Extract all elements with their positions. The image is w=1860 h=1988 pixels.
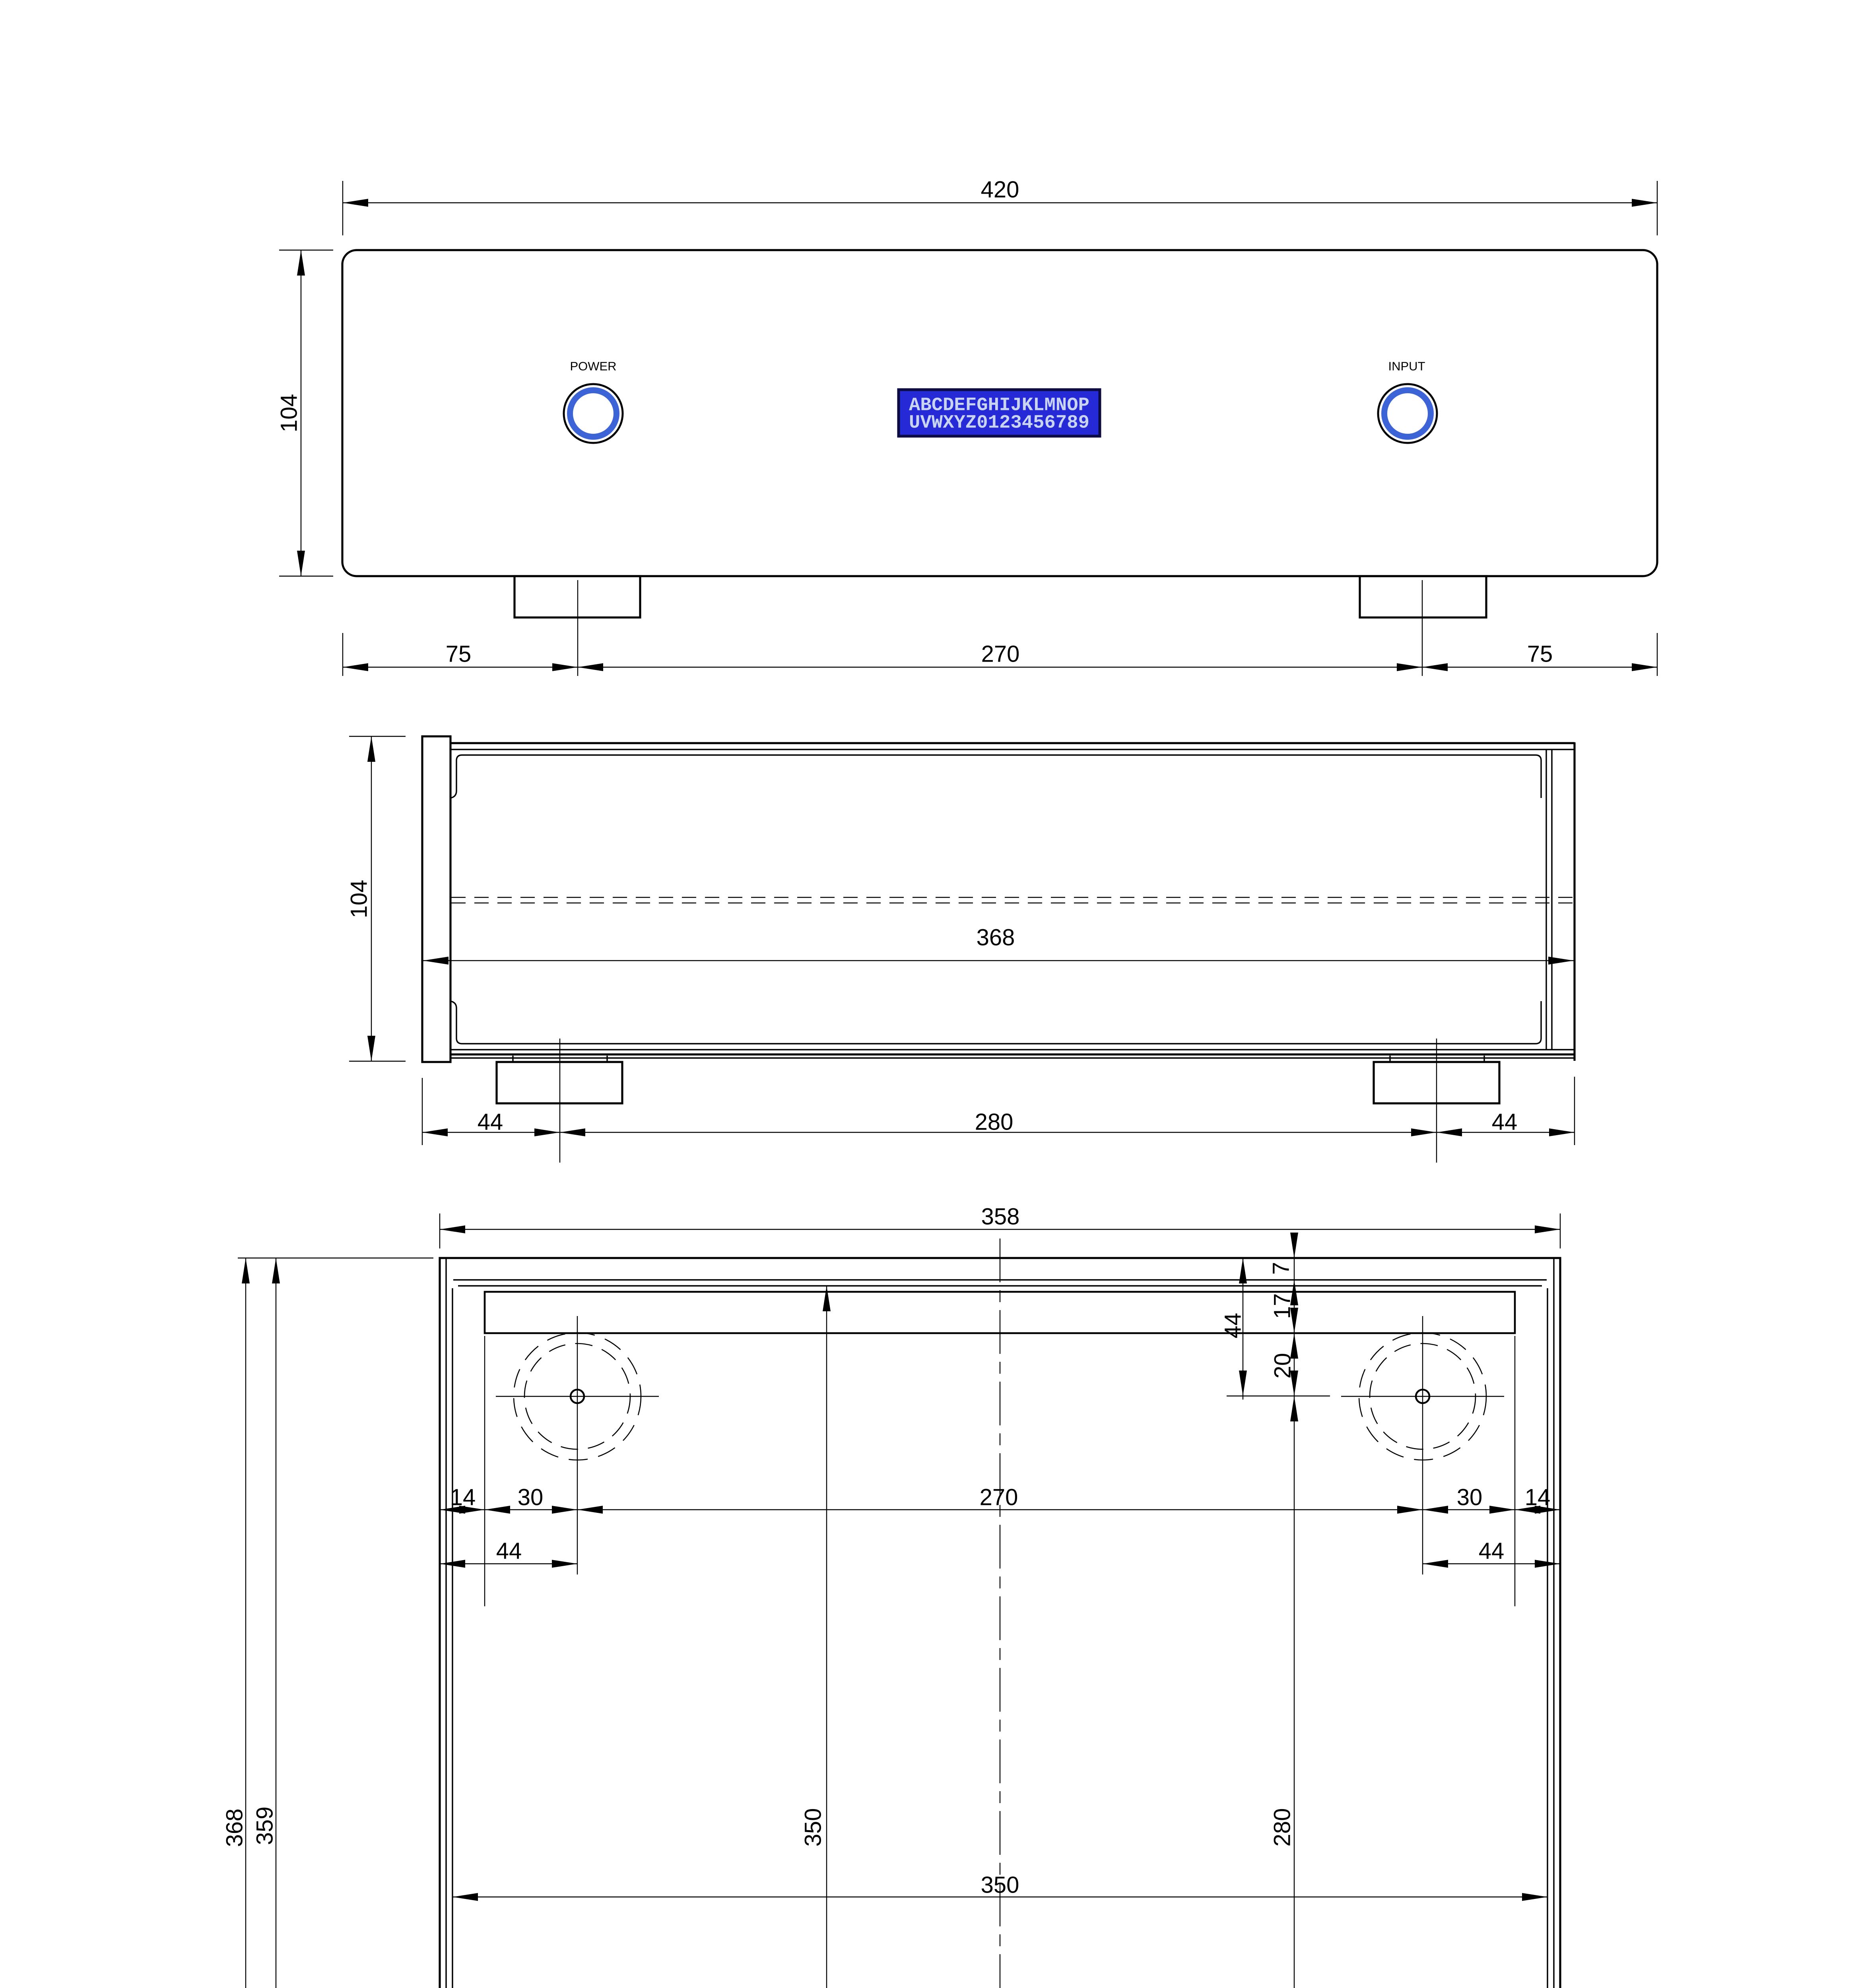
svg-text:368: 368 bbox=[222, 1809, 248, 1847]
svg-text:280: 280 bbox=[1270, 1808, 1295, 1847]
svg-text:280: 280 bbox=[975, 1109, 1013, 1135]
svg-text:POWER: POWER bbox=[570, 359, 616, 373]
svg-text:350: 350 bbox=[981, 1872, 1019, 1898]
svg-text:104: 104 bbox=[276, 394, 302, 433]
svg-text:14: 14 bbox=[450, 1485, 476, 1510]
svg-text:UVWXYZ0123456789: UVWXYZ0123456789 bbox=[909, 413, 1089, 434]
svg-text:270: 270 bbox=[981, 641, 1020, 667]
svg-text:20: 20 bbox=[1270, 1353, 1296, 1379]
svg-text:44: 44 bbox=[1492, 1109, 1518, 1135]
svg-text:350: 350 bbox=[800, 1808, 826, 1847]
svg-text:30: 30 bbox=[1457, 1485, 1483, 1510]
svg-text:44: 44 bbox=[1479, 1538, 1505, 1564]
svg-text:44: 44 bbox=[478, 1109, 503, 1135]
svg-text:44: 44 bbox=[496, 1538, 522, 1564]
svg-text:17: 17 bbox=[1270, 1293, 1295, 1319]
svg-text:75: 75 bbox=[446, 641, 472, 667]
svg-text:359: 359 bbox=[252, 1807, 278, 1845]
svg-text:104: 104 bbox=[346, 880, 372, 918]
svg-text:75: 75 bbox=[1527, 641, 1553, 667]
svg-text:30: 30 bbox=[518, 1485, 544, 1510]
svg-text:7: 7 bbox=[1268, 1262, 1294, 1275]
svg-text:420: 420 bbox=[981, 177, 1019, 203]
svg-text:44: 44 bbox=[1220, 1313, 1246, 1339]
svg-text:368: 368 bbox=[977, 925, 1015, 951]
svg-text:270: 270 bbox=[980, 1485, 1018, 1510]
svg-text:14: 14 bbox=[1525, 1485, 1551, 1510]
svg-text:358: 358 bbox=[981, 1204, 1020, 1230]
svg-text:INPUT: INPUT bbox=[1388, 359, 1425, 373]
